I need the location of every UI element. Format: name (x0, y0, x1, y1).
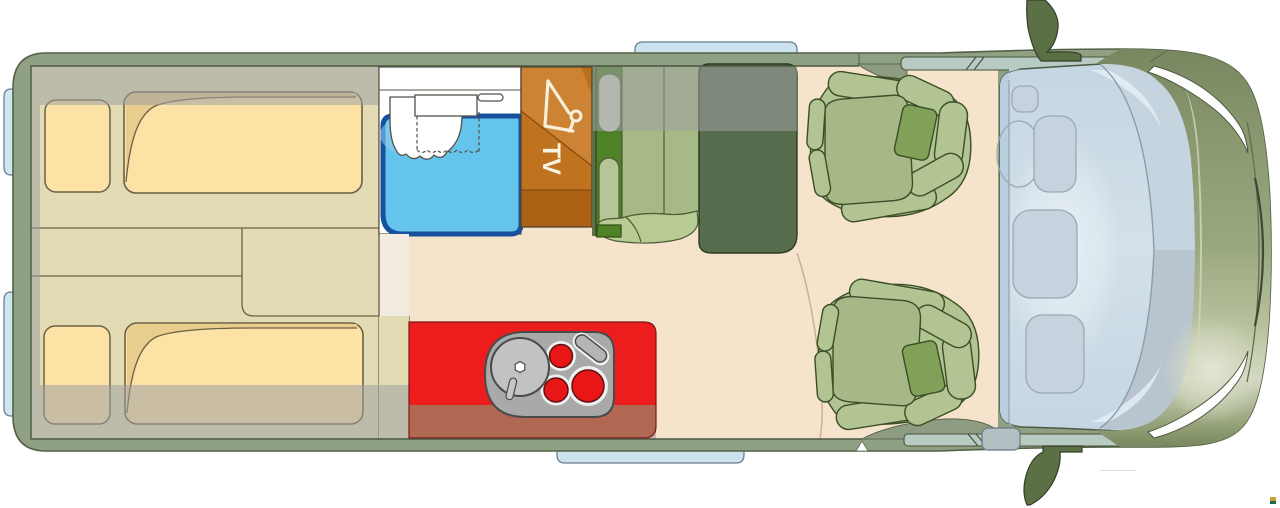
svg-text:TV: TV (537, 143, 565, 175)
